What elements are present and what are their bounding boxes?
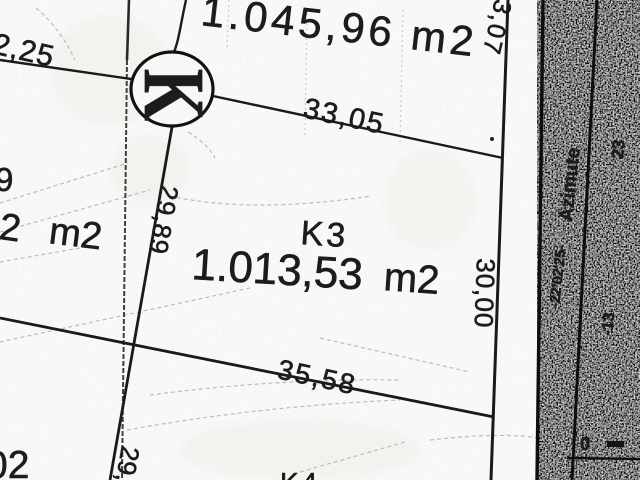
svg-text:m2: m2 <box>382 255 441 303</box>
svg-text:1.013,53: 1.013,53 <box>190 240 364 299</box>
svg-text:9: 9 <box>0 161 13 198</box>
svg-text:0: 0 <box>580 434 590 454</box>
svg-text:30,00: 30,00 <box>469 258 501 329</box>
svg-text:02: 02 <box>0 444 29 480</box>
svg-text:K: K <box>126 69 222 121</box>
svg-text:23: 23 <box>608 139 629 160</box>
svg-text:m2: m2 <box>47 210 105 258</box>
svg-text:-13: -13 <box>599 312 618 337</box>
svg-text:K4: K4 <box>280 467 320 480</box>
svg-text:29,: 29, <box>110 444 146 480</box>
